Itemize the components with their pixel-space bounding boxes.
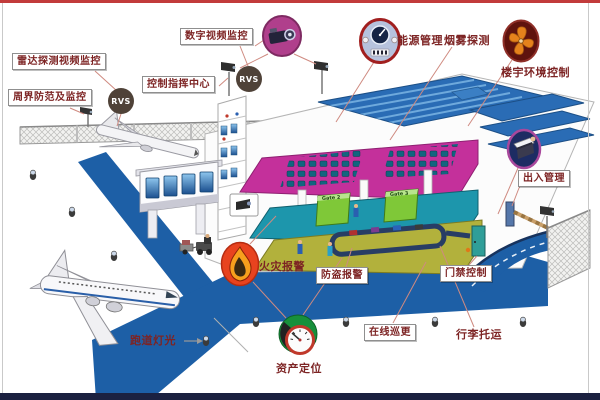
label-control-command-center: 控制指挥中心: [142, 76, 215, 93]
person-figure: [328, 242, 333, 256]
runway-light-icon: [203, 336, 209, 346]
label-luggage-checkin: 行李托运: [456, 328, 502, 341]
fan-icon: [502, 19, 540, 67]
label-runway-lights: 跑道灯光: [130, 334, 176, 347]
runway-light-icon: [253, 317, 259, 327]
right-fence: [548, 210, 590, 288]
right-border-line: [588, 3, 589, 393]
top-border-bar: [0, 0, 600, 3]
dial-gauge-icon: [276, 313, 320, 363]
label-asset-location: 资产定位: [276, 362, 322, 375]
label-door-access-control: 门禁控制: [440, 265, 492, 282]
label-energy-management: 能源管理: [397, 34, 443, 47]
label-online-patrol: 在线巡更: [364, 324, 416, 341]
gate-counter: Gate 3: [384, 189, 418, 222]
cctv-camera-icon: [80, 107, 92, 115]
label-radar-video-surveillance: 雷达探测视频监控: [12, 53, 106, 70]
wall-camera-box: [230, 194, 258, 216]
rvs-badge: RVS: [236, 66, 262, 92]
cctv-camera-icon: [314, 61, 329, 94]
diagram-canvas: Gate 2 Gate 3: [0, 0, 600, 400]
label-entry-exit-management: 出入管理: [518, 170, 570, 187]
card-reader-icon: [506, 128, 542, 174]
bottom-border-bar: [0, 393, 600, 400]
left-border-line: [2, 3, 3, 393]
runway-light-icon: [520, 317, 526, 327]
label-digital-video-surveillance: 数字视频监控: [180, 28, 253, 45]
runway-light-icon: [30, 170, 36, 180]
runway-light-icon: [111, 251, 117, 261]
runway-light-icon: [432, 317, 438, 327]
person-figure: [298, 240, 303, 254]
camera-icon: [261, 15, 303, 61]
label-burglar-alarm: 防盗报警: [316, 267, 368, 284]
meter-gauge-icon: [359, 18, 401, 68]
gate-counter: Gate 2: [316, 193, 350, 226]
runway-light-icon: [343, 317, 349, 327]
rvs-badge: RVS: [108, 88, 134, 114]
label-fire-alarm: 火灾报警: [259, 260, 305, 273]
flame-icon: [220, 241, 260, 291]
label-building-environment-control: 楼宇环境控制: [501, 66, 570, 79]
runway-light-icon: [69, 207, 75, 217]
baggage-tug: [180, 234, 212, 255]
cctv-camera-icon: [221, 62, 236, 96]
person-figure: [354, 204, 359, 217]
label-smoke-detection: 烟雾探测: [444, 34, 490, 47]
label-perimeter-monitoring: 周界防范及监控: [8, 89, 92, 106]
